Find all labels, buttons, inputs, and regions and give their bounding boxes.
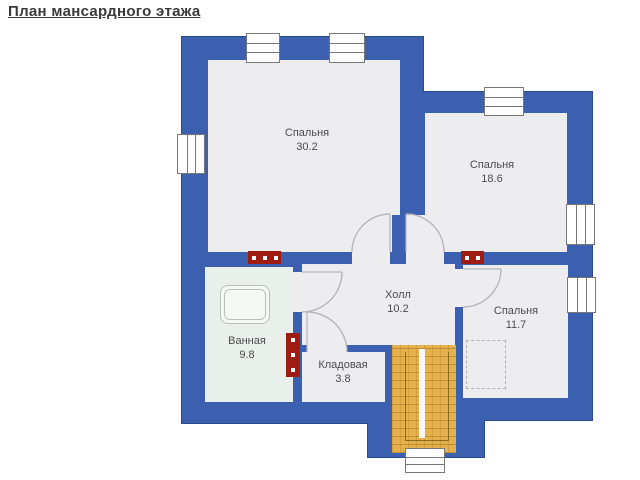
window-pane-line: [485, 97, 523, 98]
room-name: Спальня: [494, 304, 538, 318]
window-icon: [177, 134, 205, 174]
door-opening: [352, 252, 390, 264]
window-icon: [566, 204, 595, 245]
door-opening: [293, 272, 302, 312]
room-name: Спальня: [470, 158, 514, 172]
floorplan: Спальня30.2Спальня18.6Холл10.2Ванная9.8К…: [0, 0, 640, 480]
room-area: 3.8: [318, 372, 367, 386]
flue-vent-dot: [291, 338, 295, 342]
window-pane-line: [195, 135, 196, 173]
room-label: Ванная9.8: [228, 334, 266, 362]
floor-bedroom-18-ext: [406, 215, 425, 252]
room-area: 18.6: [470, 172, 514, 186]
floor-bedroom-30: [208, 60, 400, 252]
room-area: 11.7: [494, 318, 538, 332]
staircase: [392, 345, 456, 453]
window-icon: [246, 33, 280, 63]
room-area: 9.8: [228, 348, 266, 362]
window-icon: [405, 448, 445, 473]
wall: [392, 215, 406, 252]
window-pane-line: [576, 205, 577, 244]
room-name: Ванная: [228, 334, 266, 348]
window-pane-line: [585, 205, 586, 244]
window-pane-line: [330, 52, 364, 53]
flue-vent-dot: [291, 368, 295, 372]
door-opening: [307, 345, 347, 352]
door-opening: [455, 269, 463, 307]
chimney-flue: [461, 251, 484, 264]
window-pane-line: [406, 457, 444, 458]
flue-vent-dot: [263, 256, 267, 260]
room-label: Спальня11.7: [494, 304, 538, 332]
window-icon: [484, 87, 524, 116]
flue-vent-dot: [476, 256, 480, 260]
window-pane-line: [586, 278, 587, 312]
room-label: Спальня30.2: [285, 126, 329, 154]
chimney-flue: [248, 251, 281, 264]
window-pane-line: [247, 43, 279, 44]
floor-hall: [302, 264, 455, 345]
floorplan-page: План мансардного этажа Спальня30.2Спальн…: [0, 0, 640, 480]
window-pane-line: [330, 43, 364, 44]
window-pane-line: [485, 106, 523, 107]
flue-vent-dot: [465, 256, 469, 260]
room-label: Холл10.2: [385, 288, 411, 316]
flue-vent-dot: [274, 256, 278, 260]
room-name: Кладовая: [318, 358, 367, 372]
room-name: Холл: [385, 288, 411, 302]
window-pane-line: [577, 278, 578, 312]
room-label: Спальня18.6: [470, 158, 514, 186]
chimney-flue: [286, 333, 300, 377]
room-label: Кладовая3.8: [318, 358, 367, 386]
window-pane-line: [187, 135, 188, 173]
window-pane-line: [406, 464, 444, 465]
door-opening: [406, 252, 444, 264]
wardrobe-outline: [466, 340, 506, 389]
room-name: Спальня: [285, 126, 329, 140]
room-area: 10.2: [385, 302, 411, 316]
window-icon: [567, 277, 596, 313]
bathtub-inner-rim: [224, 289, 266, 320]
flue-vent-dot: [291, 353, 295, 357]
room-area: 30.2: [285, 140, 329, 154]
flue-vent-dot: [252, 256, 256, 260]
window-icon: [329, 33, 365, 63]
bathtub-icon: [220, 285, 270, 324]
staircase-stringer: [419, 349, 425, 438]
staircase-inner-flight: [405, 352, 449, 441]
window-pane-line: [247, 52, 279, 53]
